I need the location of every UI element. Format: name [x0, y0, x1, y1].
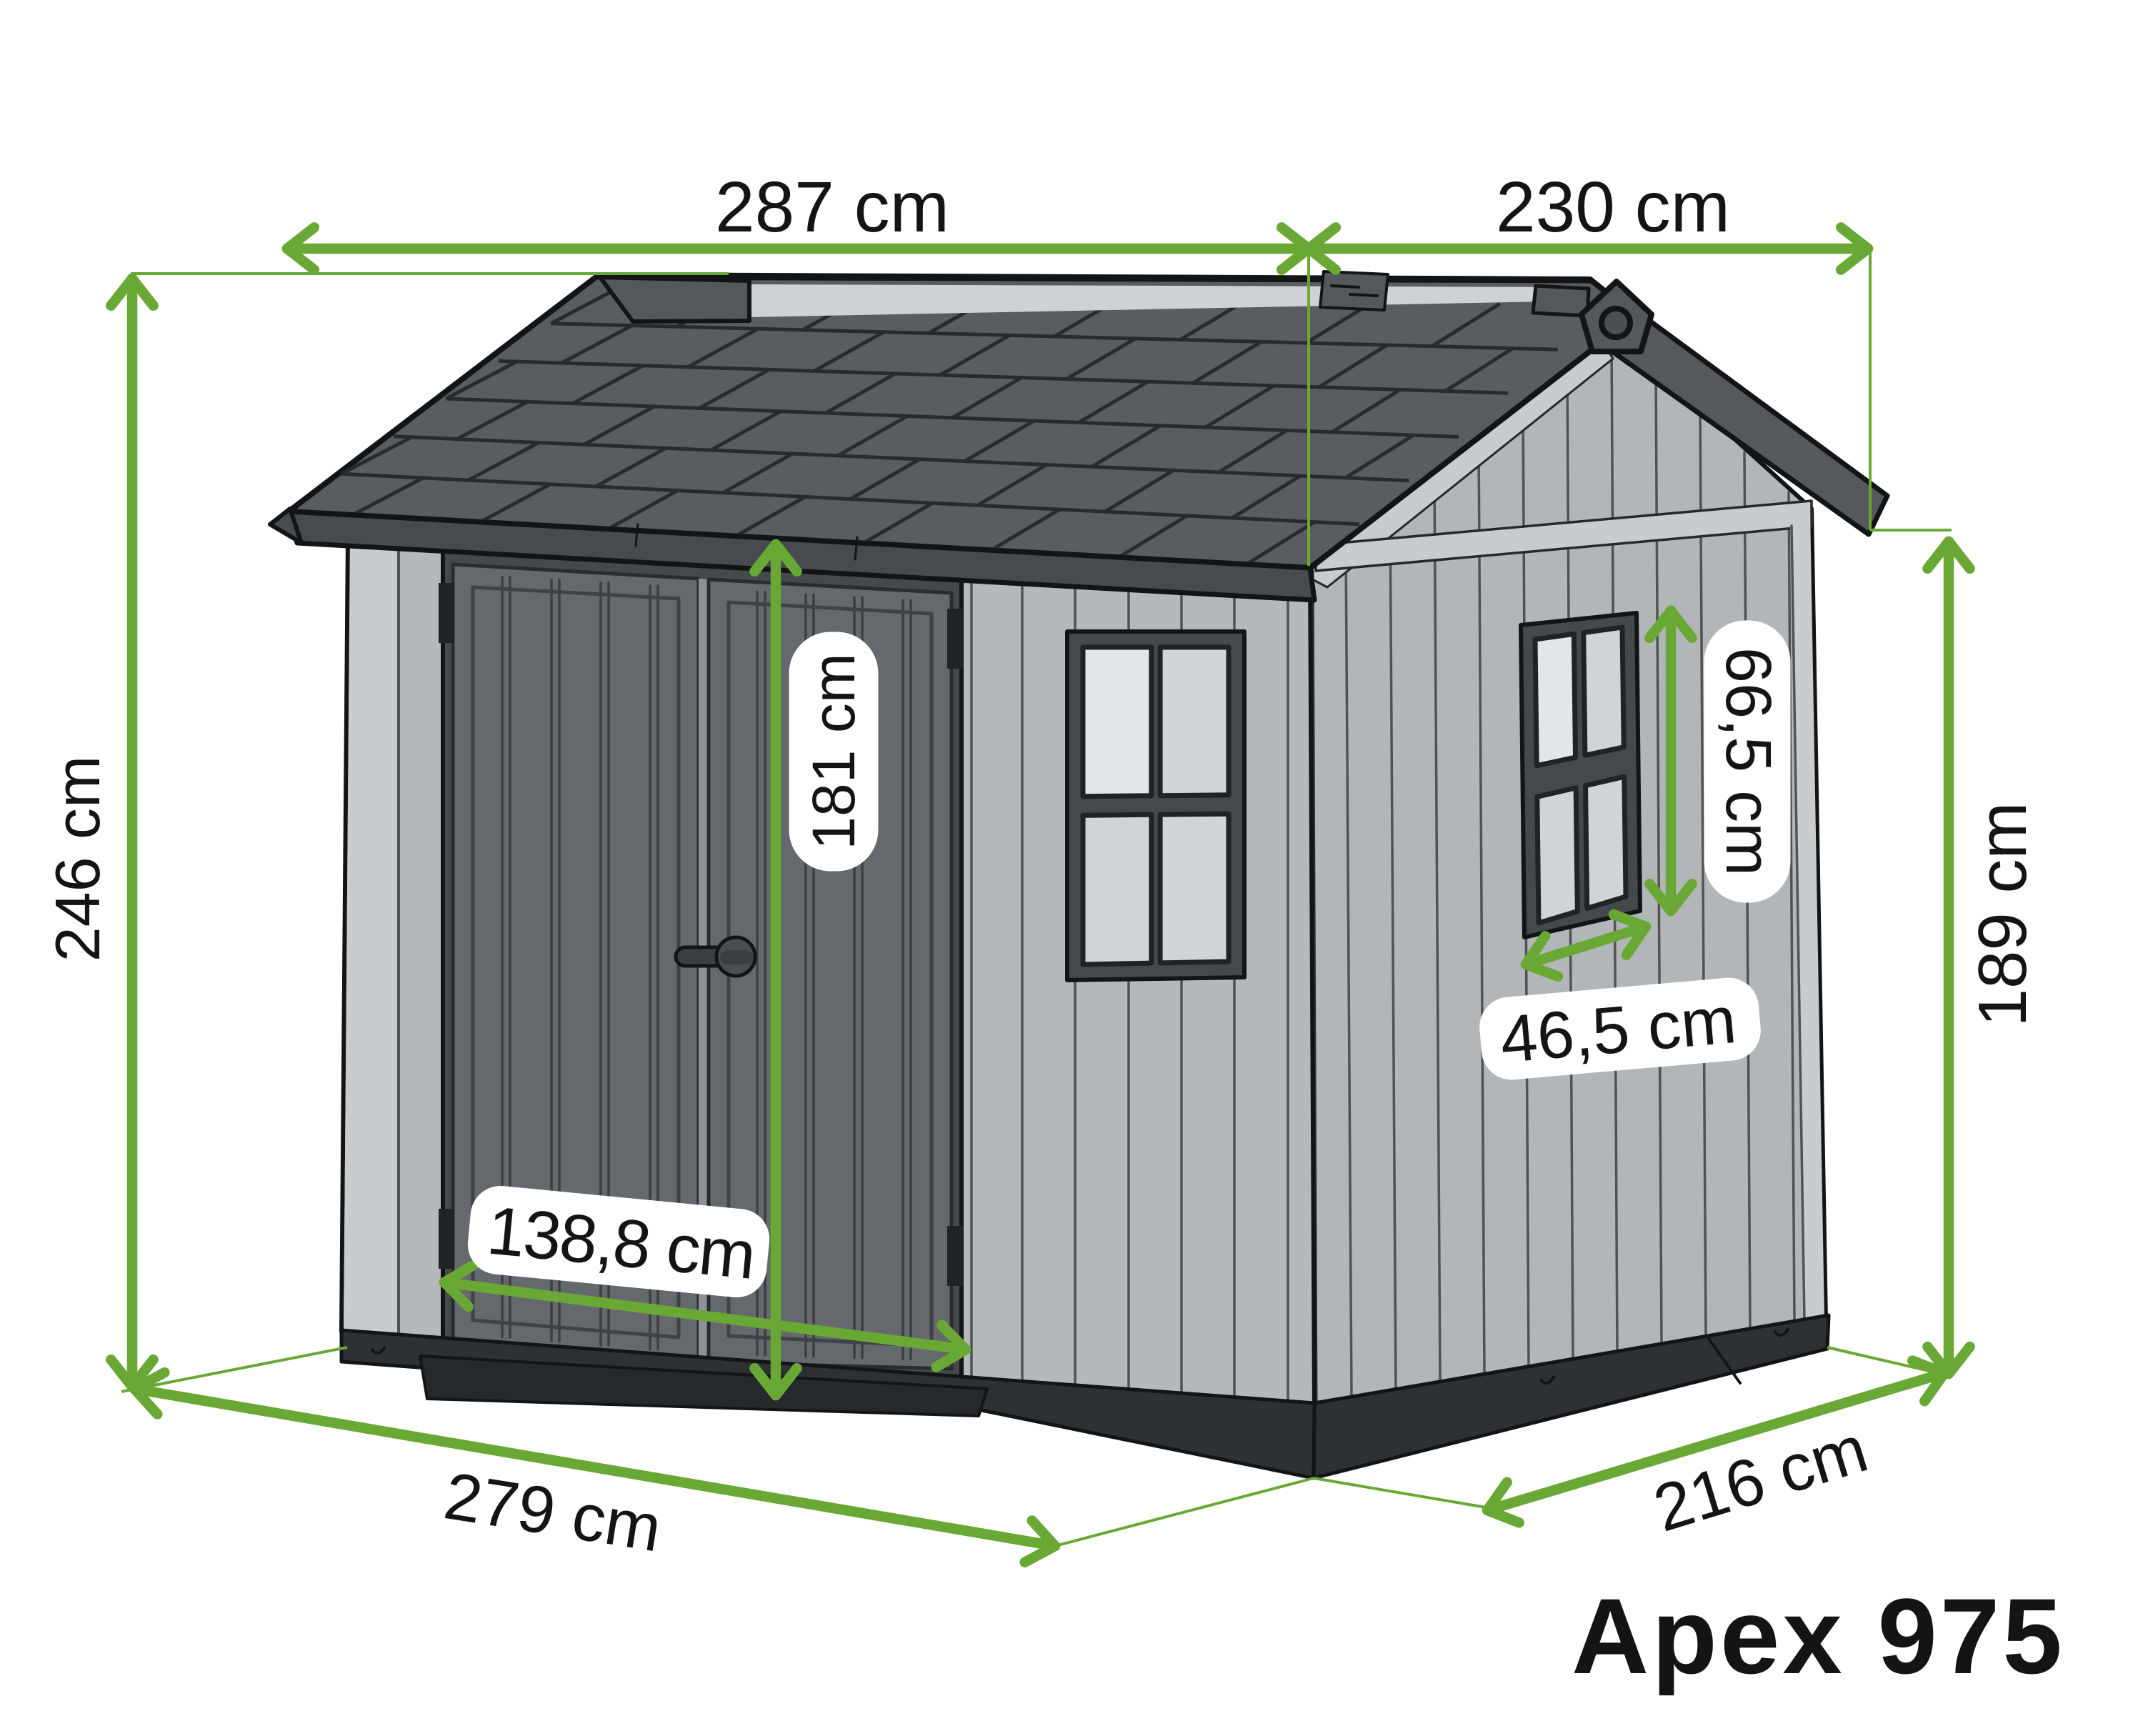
svg-text:Apex 975: Apex 975 — [1572, 1576, 2065, 1696]
svg-text:287 cm: 287 cm — [715, 167, 949, 247]
svg-text:189 cm: 189 cm — [1964, 802, 2041, 1027]
svg-text:230 cm: 230 cm — [1496, 167, 1730, 247]
svg-text:66,5 cm: 66,5 cm — [1712, 647, 1784, 876]
svg-text:246 cm: 246 cm — [42, 756, 113, 962]
svg-text:181 cm: 181 cm — [800, 653, 867, 849]
